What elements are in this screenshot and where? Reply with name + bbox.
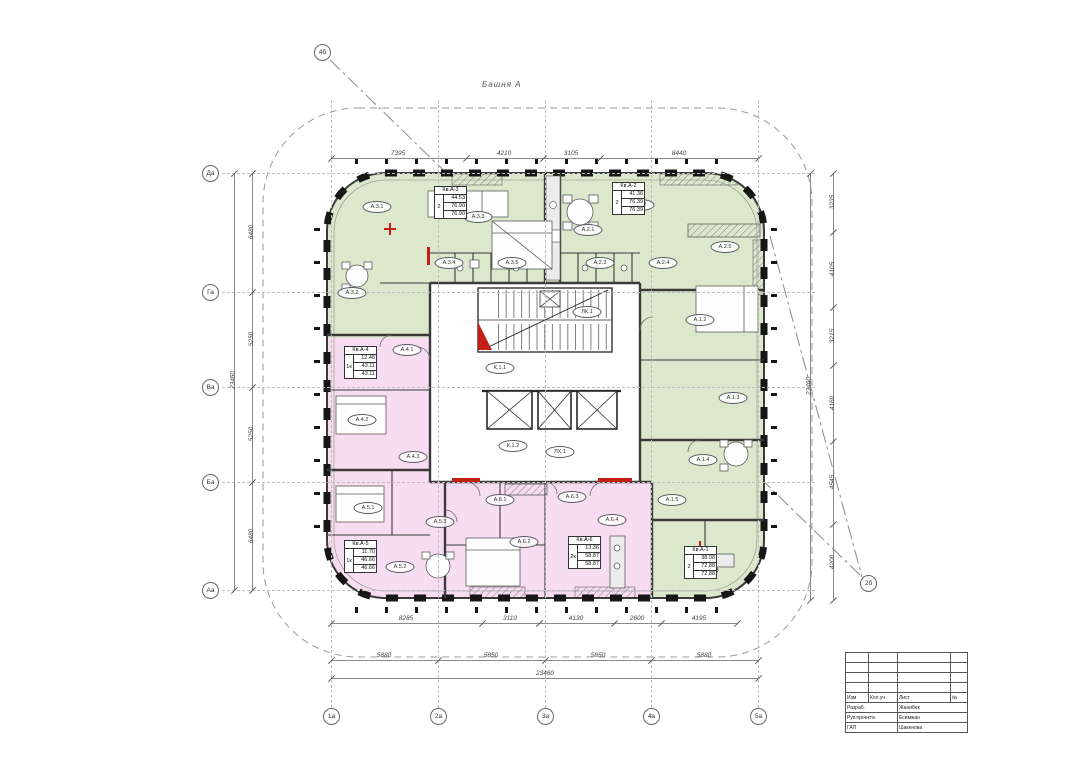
dim-tick xyxy=(734,620,741,627)
dim-label: 3105 xyxy=(564,150,578,157)
axis-circle-Га: Га xyxy=(202,284,219,301)
room-label-А.4.1: А.4.1 xyxy=(393,344,422,356)
apartment-table-Кв.А-1: Кв.А-1238.0872.8872.88 xyxy=(684,546,717,579)
title-block-cell xyxy=(869,653,898,663)
axis-circle-1а: 1а xyxy=(323,708,340,725)
dim-line xyxy=(331,623,737,624)
room-label-А.5.3: А.5.3 xyxy=(426,516,455,528)
apartment-type: 2 xyxy=(685,555,694,578)
dim-tick xyxy=(830,597,837,604)
apartment-area-value: 72.88 xyxy=(694,570,716,578)
apartment-type: 2к xyxy=(569,545,578,568)
dim-label: 4195 xyxy=(692,615,706,622)
apartment-area-value: 44.53 xyxy=(444,195,466,202)
dim-tick xyxy=(807,597,814,604)
apartment-area-value: 58.87 xyxy=(578,552,600,560)
apartment-table-Кв.А-6: Кв.А-62к13.3658.8758.87 xyxy=(568,536,601,569)
title-block-cell xyxy=(869,673,898,683)
apartment-id: Кв.А-3 xyxy=(435,187,466,195)
apartment-area-value: 76.39 xyxy=(622,206,644,214)
floor-plan-sheet: Башня А ИзмКол.учЛист№Разраб.ЖанибекРук.… xyxy=(0,0,1072,768)
room-label-А.3.1: А.3.1 xyxy=(363,201,392,213)
axis-circle-5а: 5а xyxy=(750,708,767,725)
dim-label: 4545 xyxy=(829,475,836,489)
room-label-А.5.2: А.5.2 xyxy=(386,561,415,573)
dim-label: 4200 xyxy=(829,555,836,569)
title-block-role: Разраб. xyxy=(846,703,898,713)
dim-label: 8285 xyxy=(399,615,413,622)
apartment-id: Кв.А-5 xyxy=(345,541,376,549)
room-label-А.4.2: А.4.2 xyxy=(348,414,377,426)
room-label-А.3.5: А.3.5 xyxy=(498,257,527,269)
apartment-area-value: 76.90 xyxy=(444,210,466,218)
title-block-cell xyxy=(846,663,869,673)
dim-label: 2600 xyxy=(630,615,644,622)
grid-line-4а xyxy=(651,100,652,708)
annotation-overlay: Башня А ИзмКол.учЛист№Разраб.ЖанибекРук.… xyxy=(0,0,1072,768)
dim-label: 5250 xyxy=(248,332,255,346)
apartment-area-value: 76.39 xyxy=(622,198,644,206)
title-block-header: Лист xyxy=(898,693,951,703)
dim-label: 3215 xyxy=(829,329,836,343)
title-block-cell xyxy=(869,663,898,673)
apartment-table-Кв.А-5: Кв.А-51к11.7046.6646.66 xyxy=(344,540,377,573)
dim-label: 6480 xyxy=(248,225,255,239)
room-label-А.4.3: А.4.3 xyxy=(399,451,428,463)
title-block: ИзмКол.учЛист№Разраб.ЖанибекРук.проектаЕ… xyxy=(845,652,968,733)
axis-circle-Ба: Ба xyxy=(202,474,219,491)
apartment-type: 1к xyxy=(345,549,354,572)
room-label-А.6.4: А.6.4 xyxy=(598,514,627,526)
apartment-area-value: 58.87 xyxy=(578,560,600,568)
title-block-cell xyxy=(951,673,968,683)
apartment-id: Кв.А-2 xyxy=(613,183,644,191)
axis-circle-Ва: Ва xyxy=(202,379,219,396)
dim-label: 4105 xyxy=(829,262,836,276)
title-block-cell xyxy=(951,683,968,693)
apartment-area-value: 46.66 xyxy=(354,564,376,572)
dim-label: 4130 xyxy=(569,615,583,622)
apartment-area-value: 13.36 xyxy=(578,545,600,552)
dim-label: 4210 xyxy=(497,150,511,157)
room-label-А.6.3: А.6.3 xyxy=(558,491,587,503)
dim-label: 5250 xyxy=(248,427,255,441)
title-block-cell xyxy=(898,673,951,683)
tower-label: Башня А xyxy=(482,80,522,89)
room-label-А.2.1: А.2.1 xyxy=(574,224,603,236)
title-block-name: Есимжан xyxy=(898,713,968,723)
title-block-name: Шакенова xyxy=(898,723,968,733)
room-label-А.5.1: А.5.1 xyxy=(354,502,383,514)
room-label-К.1.1: К.1.1 xyxy=(486,362,515,374)
apartment-type: 2 xyxy=(435,195,444,218)
room-label-ЛК.1: ЛК.1 xyxy=(573,306,602,318)
title-block-header: Кол.уч xyxy=(869,693,898,703)
dim-label: 4160 xyxy=(829,396,836,410)
room-label-А.3.2: А.3.2 xyxy=(338,287,367,299)
apartment-area-value: 43.11 xyxy=(354,362,376,370)
dim-label: 5880 xyxy=(697,652,711,659)
dim-label: 5850 xyxy=(591,652,605,659)
apartment-area-value: 76.90 xyxy=(444,202,466,210)
apartment-area-value: 43.11 xyxy=(354,370,376,378)
dim-label: 3110 xyxy=(503,615,517,622)
room-label-А.2.4: А.2.4 xyxy=(649,257,678,269)
title-block-name: Жанибек xyxy=(898,703,968,713)
dim-label: 7395 xyxy=(391,150,405,157)
dim-label: 23460 xyxy=(536,670,554,677)
dim-line xyxy=(833,173,834,600)
grid-line-Аа xyxy=(222,590,815,591)
title-block-cell xyxy=(898,653,951,663)
apartment-area-value: 41.36 xyxy=(622,191,644,198)
room-label-К.1.2: К.1.2 xyxy=(499,440,528,452)
dim-label: 5880 xyxy=(377,652,391,659)
room-label-А.2.3: А.2.3 xyxy=(586,257,615,269)
axis-circle-4а: 4а xyxy=(643,708,660,725)
title-block-cell xyxy=(898,683,951,693)
room-label-А.2.5: А.2.5 xyxy=(711,241,740,253)
apartment-table-Кв.А-2: Кв.А-2241.3676.3976.39 xyxy=(612,182,645,215)
title-block-header: Изм xyxy=(846,693,869,703)
axis-circle-Да: Да xyxy=(202,165,219,182)
apartment-area-value: 12.46 xyxy=(354,355,376,362)
room-label-А.1.4: А.1.4 xyxy=(689,454,718,466)
grid-line-Да xyxy=(222,173,815,174)
grid-line-Га xyxy=(222,292,815,293)
grid-line-5а xyxy=(758,100,759,708)
title-block-cell xyxy=(846,673,869,683)
axis-circle-Аа: Аа xyxy=(202,582,219,599)
title-block-role: Рук.проекта xyxy=(846,713,898,723)
apartment-id: Кв.А-1 xyxy=(685,547,716,555)
grid-line-1а xyxy=(331,100,332,708)
room-label-А.3.3: А.3.3 xyxy=(464,211,493,223)
apartment-area-value: 72.88 xyxy=(694,562,716,570)
grid-line-Ба xyxy=(222,482,815,483)
apartment-id: Кв.А-6 xyxy=(569,537,600,545)
grid-line-Ва xyxy=(222,387,815,388)
room-label-А.1.2: А.1.2 xyxy=(686,314,715,326)
apartment-area-value: 38.08 xyxy=(694,555,716,562)
dim-label: 23460 xyxy=(806,377,813,395)
room-label-А.3.4: А.3.4 xyxy=(435,257,464,269)
apartment-table-Кв.А-4: Кв.А-41к12.4643.1143.11 xyxy=(344,346,377,379)
apartment-type: 2 xyxy=(613,191,622,214)
marker-circle-4б: 4б xyxy=(314,44,331,61)
room-label-А.6.2: А.6.2 xyxy=(510,536,539,548)
title-block-role: ГАП xyxy=(846,723,898,733)
room-label-А.1.5: А.1.5 xyxy=(658,494,687,506)
room-label-А.1.3: А.1.3 xyxy=(719,392,748,404)
room-label-А.6.1: А.6.1 xyxy=(486,494,515,506)
dim-label: 8440 xyxy=(672,150,686,157)
grid-line-3а xyxy=(545,100,546,708)
dim-label: 3235 xyxy=(829,195,836,209)
apartment-type: 1к xyxy=(345,355,354,378)
dim-label: 6480 xyxy=(248,529,255,543)
title-block-cell xyxy=(898,663,951,673)
room-label-ЛХ.1: ЛХ.1 xyxy=(546,446,575,458)
dim-label: 5850 xyxy=(484,652,498,659)
title-block-header: № xyxy=(951,693,968,703)
dim-line xyxy=(331,678,758,679)
title-block-cell xyxy=(846,683,869,693)
apartment-area-value: 46.66 xyxy=(354,556,376,564)
apartment-id: Кв.А-4 xyxy=(345,347,376,355)
title-block-cell xyxy=(869,683,898,693)
title-block-cell xyxy=(951,653,968,663)
title-block-cell xyxy=(846,653,869,663)
axis-circle-3а: 3а xyxy=(537,708,554,725)
axis-circle-2а: 2а xyxy=(430,708,447,725)
apartment-table-Кв.А-3: Кв.А-3244.5376.9076.90 xyxy=(434,186,467,219)
dim-label: 23460 xyxy=(230,371,237,389)
marker-circle-2б: 2б xyxy=(860,575,877,592)
title-block-cell xyxy=(951,663,968,673)
apartment-area-value: 11.70 xyxy=(354,549,376,556)
